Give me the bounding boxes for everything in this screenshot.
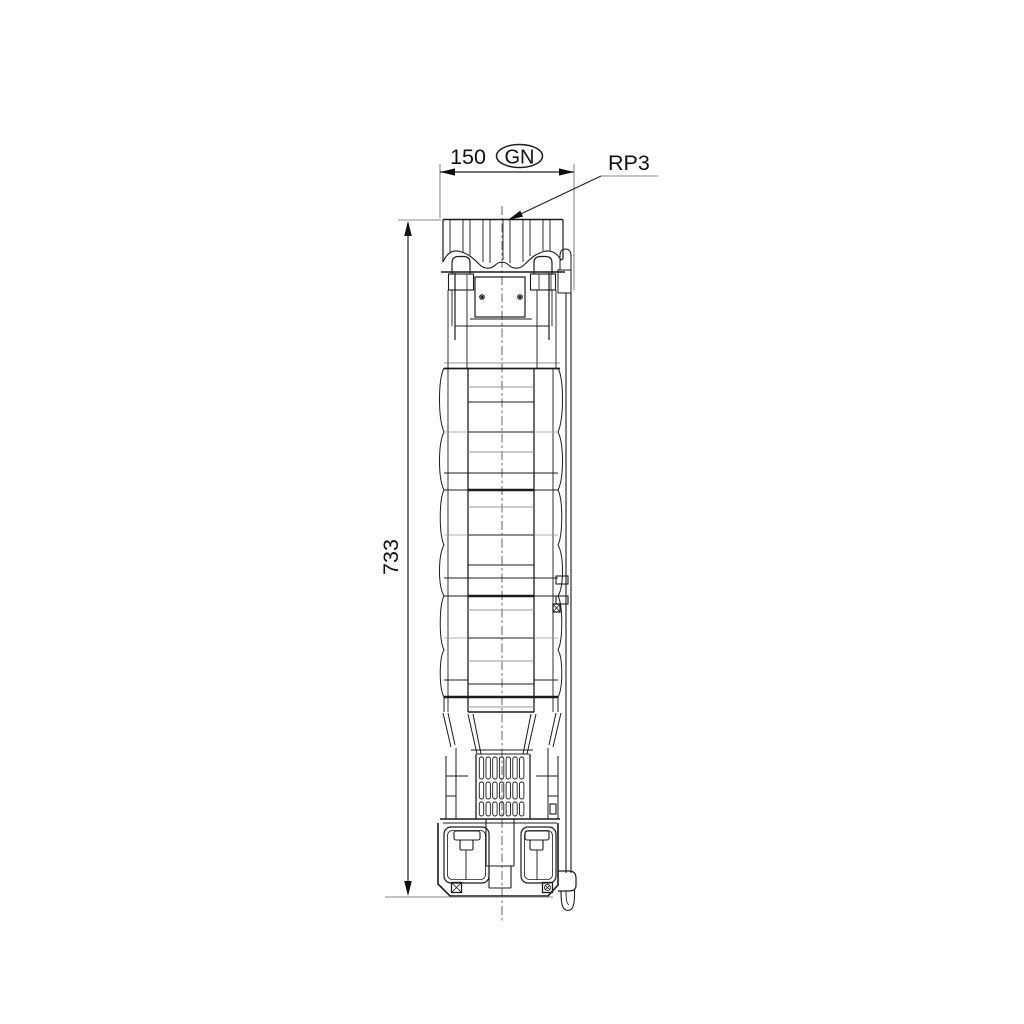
gn-badge-label: GN <box>505 147 535 169</box>
cable-guard-right <box>534 368 563 712</box>
arrowhead-up <box>404 221 412 236</box>
height-dimension-value: 733 <box>379 539 403 575</box>
arrowhead-down <box>404 881 412 896</box>
cable-plug-left <box>454 831 480 880</box>
screw-left <box>452 883 462 893</box>
height-dimension: 733 <box>379 220 553 897</box>
cable-end-hook <box>558 871 576 911</box>
suction-strainer <box>476 754 530 819</box>
arrowhead-right <box>559 168 574 175</box>
leader-arrowhead <box>508 211 523 220</box>
connection-size-label: RP3 <box>608 151 650 175</box>
cable-plug-right <box>525 831 549 880</box>
gn-badge: GN <box>497 145 543 169</box>
motor-center-piece <box>486 819 514 888</box>
width-dimension-value: 150 <box>450 145 486 169</box>
cable-guard-left <box>440 368 469 712</box>
pump-outline-drawing-page: 150 GN RP3 733 <box>0 0 1024 1024</box>
arrowhead-left <box>440 168 455 175</box>
technical-drawing: 150 GN RP3 733 <box>0 0 1024 1024</box>
chamber-stack <box>444 368 558 712</box>
pump-assembly <box>438 220 576 911</box>
nameplate <box>470 277 532 319</box>
screw-right <box>543 883 553 893</box>
valve-casing <box>441 220 565 273</box>
width-dimension: 150 GN <box>440 145 574 291</box>
cable-guard-right-mount <box>531 249 572 368</box>
cable-guard-left-mount <box>448 257 474 369</box>
